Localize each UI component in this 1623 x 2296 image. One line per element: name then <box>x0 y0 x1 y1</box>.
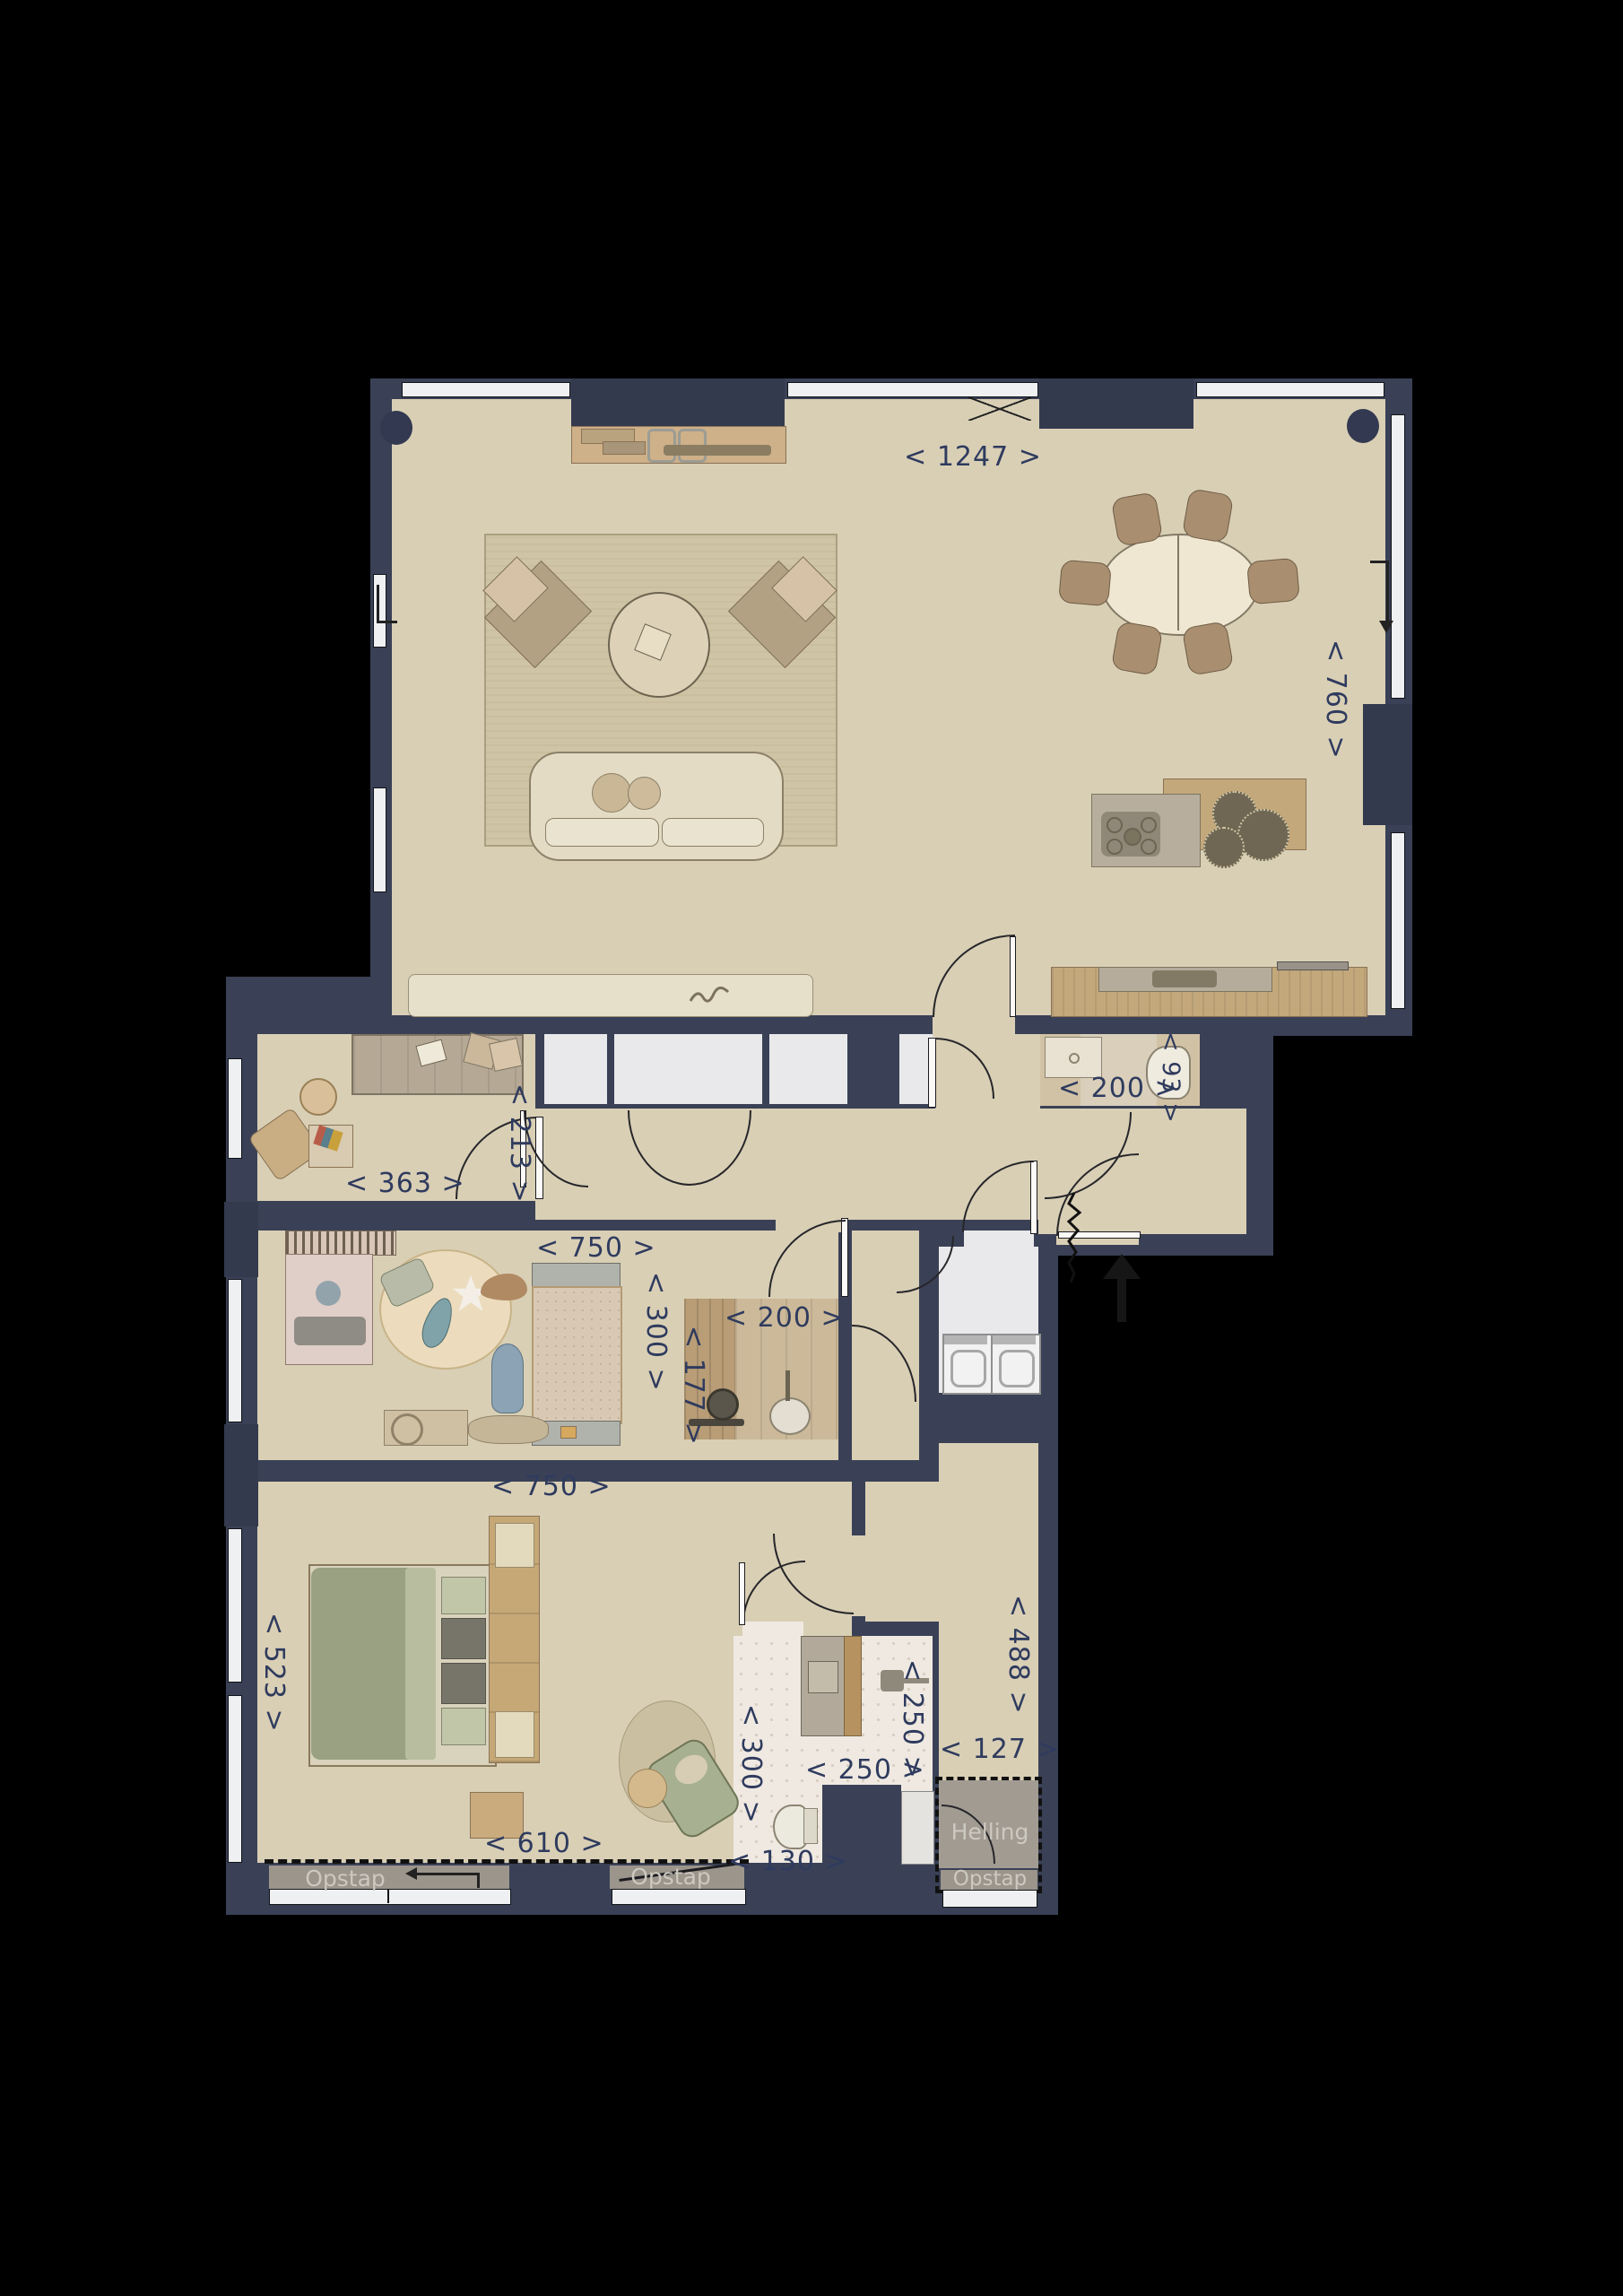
bath-toilet-tank <box>803 1808 818 1844</box>
dim-kids-width: < 750 > <box>536 1232 635 1264</box>
storage-fan-stand <box>785 1370 790 1401</box>
north-arrow-icon <box>1099 1254 1144 1324</box>
dim-bath-right-depth: < 250 > <box>897 1659 928 1758</box>
dim-bath-left: < 130 > <box>728 1846 822 1877</box>
window-bedroom-2 <box>228 1695 242 1863</box>
study-stool <box>299 1078 337 1116</box>
pier-left-2 <box>224 1424 258 1526</box>
dim-living-height: < 760 > <box>1320 623 1351 776</box>
bed-pillow-3 <box>441 1663 486 1704</box>
dining-chair-4 <box>1246 558 1300 605</box>
dim-storage-width: < 200 > <box>725 1302 821 1334</box>
column-left <box>380 411 412 445</box>
dining-table-split <box>1177 535 1179 631</box>
dim-bedroom-bottom: < 610 > <box>484 1828 578 1859</box>
window-study <box>228 1058 242 1159</box>
dim-kids-depth: < 300 > <box>640 1272 672 1370</box>
pier-top-1 <box>571 378 785 429</box>
nightstand-2 <box>495 1711 534 1758</box>
burner-1 <box>1107 817 1123 833</box>
bath-vanity-wood <box>844 1636 862 1736</box>
window-tilt-indicator <box>968 397 1031 421</box>
kids-playmat <box>468 1415 549 1444</box>
floor-plan: < 1247 > < 760 > < 200 > < 93 > < 363 > … <box>0 0 1623 2296</box>
bedroom-side-table <box>628 1769 667 1808</box>
door-leaf-bathroom <box>739 1562 745 1625</box>
desk-item-2 <box>603 441 646 455</box>
ramp-exit-door <box>942 1890 1037 1908</box>
sofa-seat-2 <box>662 818 764 847</box>
window-bedroom-1 <box>228 1528 242 1683</box>
window-top-3 <box>1196 382 1384 397</box>
washer-2-door <box>999 1350 1035 1387</box>
nightstand-1 <box>495 1523 534 1568</box>
washer-2-panel <box>993 1335 1036 1344</box>
dim-corridor-width: < 127 > <box>940 1734 1031 1765</box>
label-step-ramp: Opstap <box>949 1867 1031 1891</box>
window-top-1 <box>402 382 570 397</box>
dining-chair-5 <box>1111 621 1164 676</box>
dim-storage-depth: < 177 > <box>678 1326 709 1417</box>
burner-2 <box>1141 817 1157 833</box>
dining-chair-3 <box>1058 560 1112 607</box>
dining-chair-6 <box>1182 621 1235 676</box>
doorway-bedroom <box>852 1535 866 1616</box>
dim-bedroom-width: < 750 > <box>491 1471 590 1502</box>
kids-bed <box>285 1254 373 1365</box>
window-left-living <box>373 787 386 892</box>
step-left-arrow-head <box>405 1867 417 1880</box>
sofa-pillow-2 <box>628 777 661 810</box>
dim-study-width: < 363 > <box>345 1168 448 1199</box>
kids-wardrobe-handle <box>560 1426 577 1439</box>
sofa-seat <box>545 818 659 847</box>
dining-chair-2 <box>1182 488 1235 544</box>
storage-weight <box>707 1388 739 1421</box>
kids-wardrobe <box>532 1286 622 1424</box>
dim-wc-width: < 200 > <box>1058 1073 1161 1104</box>
window-bottom-right <box>612 1889 746 1905</box>
window-right-1 <box>1391 414 1405 699</box>
window-right-2 <box>1391 832 1405 1009</box>
dim-wc-depth: < 93 > <box>1157 1031 1185 1108</box>
dining-chair-1 <box>1111 491 1164 547</box>
bath-vanity-sink <box>808 1661 838 1693</box>
exit-arrow-left-icon <box>377 585 397 623</box>
sofa-pillow-1 <box>592 773 631 813</box>
label-ramp: Helling <box>949 1819 1031 1845</box>
kids-wardrobe-top <box>532 1263 621 1288</box>
washer-1-door <box>950 1350 986 1387</box>
study-pillow-2 <box>489 1038 523 1072</box>
doorway-bathroom <box>742 1622 803 1636</box>
dim-living-width: < 1247 > <box>897 441 1049 473</box>
desk-shelf <box>664 445 771 456</box>
kitchen-appliance <box>1277 961 1349 970</box>
bed-pillow-1 <box>441 1577 486 1614</box>
label-step-left: Opstap <box>296 1865 395 1892</box>
doorway-living-hall <box>933 1015 1015 1037</box>
burner-4 <box>1141 839 1157 855</box>
bed-duvet-fold <box>405 1568 436 1760</box>
pier-left-1 <box>224 1202 258 1277</box>
door-leaf-living-hall <box>1010 936 1016 1017</box>
window-kids <box>228 1279 242 1422</box>
burner-center <box>1124 828 1141 846</box>
kitchen-sink <box>1152 970 1217 987</box>
column-right <box>1347 409 1379 443</box>
kids-crib <box>285 1231 396 1256</box>
dim-bath-depth: < 300 > <box>735 1704 767 1803</box>
dim-bedroom-depth: < 523 > <box>258 1613 290 1711</box>
step-left-arrow-icon <box>414 1873 480 1888</box>
kids-rocket-toy <box>491 1344 524 1413</box>
plate-2 <box>1237 809 1289 861</box>
kids-bed-pillow <box>316 1281 341 1306</box>
dim-study-depth: < 213 > <box>504 1083 535 1178</box>
pier-top-2 <box>1039 378 1193 429</box>
dim-bath-width: < 250 > <box>805 1754 902 1786</box>
pier-right <box>1363 704 1412 825</box>
window-top-2 <box>787 382 1038 397</box>
kids-play-ring <box>391 1413 423 1446</box>
exit-arrow-right-head <box>1379 621 1393 633</box>
break-line-squiggle <box>1063 1193 1085 1283</box>
dining-table <box>1101 534 1259 636</box>
storage-fan <box>769 1397 811 1435</box>
doorway-tech <box>964 1231 1034 1247</box>
bed-pillow-4 <box>441 1708 486 1745</box>
bed-pillow-2 <box>441 1618 486 1659</box>
dim-corridor-depth: < 488 > <box>1002 1595 1034 1689</box>
exit-arrow-right-icon <box>1370 561 1389 626</box>
living-bench <box>408 974 813 1017</box>
closet-c-floor <box>769 1034 847 1104</box>
wc-sink-drain <box>1069 1053 1080 1064</box>
burner-3 <box>1107 839 1123 855</box>
label-step-right: Opstap <box>617 1864 725 1890</box>
closet-a-floor <box>544 1034 607 1104</box>
washer-1-panel <box>944 1335 987 1344</box>
kids-bed-blanket <box>294 1317 366 1345</box>
plate-3 <box>1203 827 1245 868</box>
bench-squiggle <box>689 985 730 1008</box>
bathroom-partition <box>901 1791 934 1865</box>
closet-b-floor <box>614 1034 762 1104</box>
